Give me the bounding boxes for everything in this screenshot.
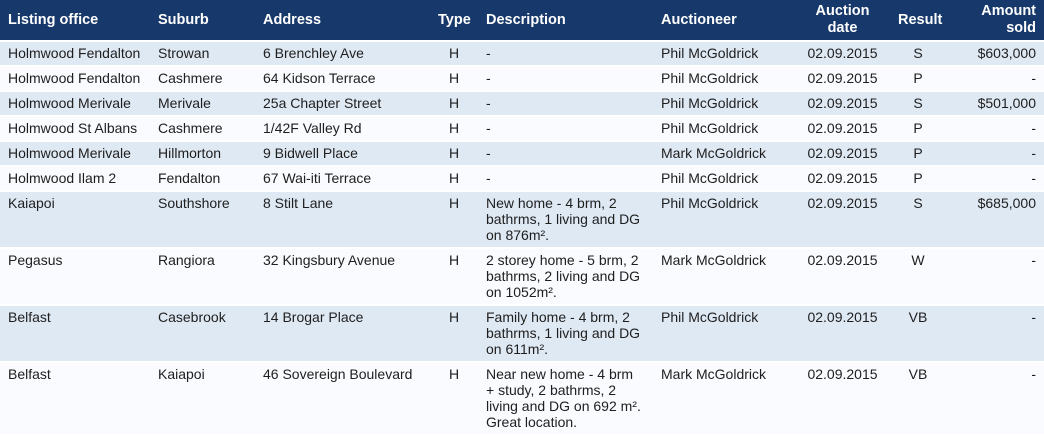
cell-listing-office: Holmwood Fendalton [0,42,150,67]
cell-address: 25a Chapter Street [255,92,430,117]
table-header-row: Listing office Suburb Address Type Descr… [0,0,1044,42]
cell-amount-sold: - [946,117,1044,142]
cell-auction-date: 02.09.2015 [795,192,890,249]
cell-auction-date: 02.09.2015 [795,142,890,167]
col-header-address: Address [255,0,430,42]
col-header-listing-office: Listing office [0,0,150,42]
cell-address: 8 Stilt Lane [255,192,430,249]
cell-address: 46 Sovereign Boulevard [255,363,430,436]
table-row: Belfast Kaiapoi 46 Sovereign Boulevard H… [0,363,1044,436]
cell-amount-sold: - [946,142,1044,167]
cell-type: H [430,363,478,436]
cell-auction-date: 02.09.2015 [795,306,890,363]
cell-auctioneer: Mark McGoldrick [653,363,795,436]
cell-type: H [430,42,478,67]
cell-amount-sold: - [946,67,1044,92]
table-row: Holmwood Merivale Merivale 25a Chapter S… [0,92,1044,117]
table-row: Kaiapoi Southshore 8 Stilt Lane H New ho… [0,192,1044,249]
cell-description: Near new home - 4 brm + study, 2 bathrms… [478,363,653,436]
cell-result: P [890,67,946,92]
col-header-auctioneer: Auctioneer [653,0,795,42]
cell-auction-date: 02.09.2015 [795,67,890,92]
cell-description: - [478,42,653,67]
cell-result: P [890,142,946,167]
cell-auctioneer: Mark McGoldrick [653,249,795,306]
cell-amount-sold: - [946,167,1044,192]
cell-address: 32 Kingsbury Avenue [255,249,430,306]
cell-auction-date: 02.09.2015 [795,42,890,67]
cell-result: W [890,249,946,306]
cell-suburb: Hillmorton [150,142,255,167]
cell-listing-office: Holmwood Merivale [0,142,150,167]
cell-listing-office: Holmwood Ilam 2 [0,167,150,192]
cell-description: - [478,67,653,92]
cell-amount-sold: - [946,249,1044,306]
table-row: Holmwood St Albans Cashmere 1/42F Valley… [0,117,1044,142]
cell-result: S [890,92,946,117]
cell-listing-office: Holmwood Fendalton [0,67,150,92]
col-header-result: Result [890,0,946,42]
cell-description: 2 storey home - 5 brm, 2 bathrms, 2 livi… [478,249,653,306]
cell-listing-office: Pegasus [0,249,150,306]
cell-auctioneer: Phil McGoldrick [653,167,795,192]
cell-result: VB [890,363,946,436]
cell-suburb: Casebrook [150,306,255,363]
table-row: Holmwood Ilam 2 Fendalton 67 Wai-iti Ter… [0,167,1044,192]
cell-description: - [478,167,653,192]
col-header-suburb: Suburb [150,0,255,42]
cell-listing-office: Kaiapoi [0,192,150,249]
cell-type: H [430,142,478,167]
table-row: Pegasus Rangiora 32 Kingsbury Avenue H 2… [0,249,1044,306]
col-header-description: Description [478,0,653,42]
table-row: Holmwood Fendalton Strowan 6 Brenchley A… [0,42,1044,67]
cell-auction-date: 02.09.2015 [795,363,890,436]
cell-address: 9 Bidwell Place [255,142,430,167]
cell-type: H [430,249,478,306]
cell-description: - [478,92,653,117]
cell-suburb: Kaiapoi [150,363,255,436]
cell-amount-sold: $685,000 [946,192,1044,249]
cell-address: 1/42F Valley Rd [255,117,430,142]
cell-listing-office: Holmwood Merivale [0,92,150,117]
cell-result: S [890,192,946,249]
table-row: Belfast Casebrook 14 Brogar Place H Fami… [0,306,1044,363]
cell-suburb: Fendalton [150,167,255,192]
cell-amount-sold: - [946,363,1044,436]
cell-auction-date: 02.09.2015 [795,249,890,306]
cell-address: 64 Kidson Terrace [255,67,430,92]
table-row: Holmwood Fendalton Cashmere 64 Kidson Te… [0,67,1044,92]
cell-suburb: Rangiora [150,249,255,306]
cell-listing-office: Belfast [0,306,150,363]
cell-listing-office: Holmwood St Albans [0,117,150,142]
cell-listing-office: Belfast [0,363,150,436]
cell-type: H [430,117,478,142]
cell-auction-date: 02.09.2015 [795,167,890,192]
cell-type: H [430,92,478,117]
cell-auctioneer: Phil McGoldrick [653,117,795,142]
cell-amount-sold: $501,000 [946,92,1044,117]
cell-suburb: Southshore [150,192,255,249]
cell-address: 14 Brogar Place [255,306,430,363]
cell-description: - [478,142,653,167]
cell-description: Family home - 4 brm, 2 bathrms, 1 living… [478,306,653,363]
cell-address: 6 Brenchley Ave [255,42,430,67]
cell-result: P [890,117,946,142]
cell-amount-sold: - [946,306,1044,363]
cell-amount-sold: $603,000 [946,42,1044,67]
cell-result: S [890,42,946,67]
col-header-auction-date: Auction date [795,0,890,42]
cell-type: H [430,67,478,92]
cell-result: P [890,167,946,192]
cell-type: H [430,192,478,249]
cell-type: H [430,306,478,363]
cell-suburb: Merivale [150,92,255,117]
table-row: Holmwood Merivale Hillmorton 9 Bidwell P… [0,142,1044,167]
cell-description: - [478,117,653,142]
cell-address: 67 Wai-iti Terrace [255,167,430,192]
col-header-amount-sold: Amount sold [946,0,1044,42]
cell-auctioneer: Phil McGoldrick [653,306,795,363]
cell-auction-date: 02.09.2015 [795,92,890,117]
cell-auctioneer: Phil McGoldrick [653,67,795,92]
cell-suburb: Cashmere [150,67,255,92]
cell-suburb: Cashmere [150,117,255,142]
cell-auction-date: 02.09.2015 [795,117,890,142]
cell-suburb: Strowan [150,42,255,67]
cell-auctioneer: Phil McGoldrick [653,192,795,249]
cell-auctioneer: Mark McGoldrick [653,142,795,167]
cell-auctioneer: Phil McGoldrick [653,42,795,67]
cell-result: VB [890,306,946,363]
cell-type: H [430,167,478,192]
col-header-type: Type [430,0,478,42]
cell-description: New home - 4 brm, 2 bathrms, 1 living an… [478,192,653,249]
cell-auctioneer: Phil McGoldrick [653,92,795,117]
auction-results-table: Listing office Suburb Address Type Descr… [0,0,1044,436]
